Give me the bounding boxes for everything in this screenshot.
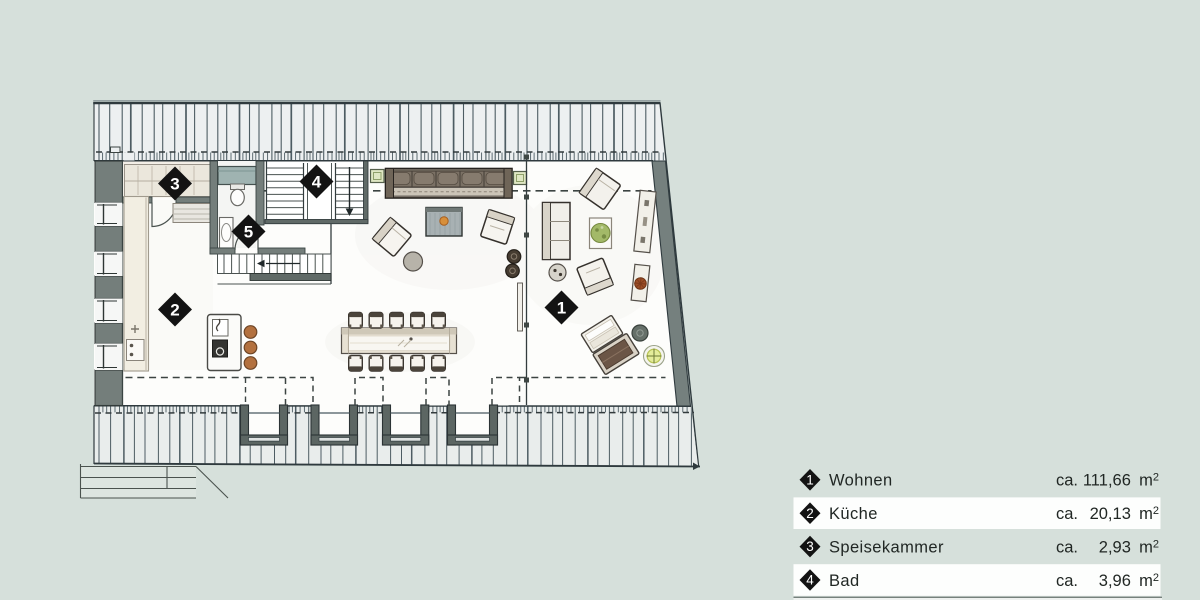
svg-text:ca.: ca.: [1056, 505, 1078, 523]
svg-text:2,93 m2: 2,93 m2: [1099, 538, 1159, 556]
svg-text:2: 2: [806, 506, 814, 521]
svg-text:ca.: ca.: [1056, 538, 1078, 556]
svg-text:3,96 m2: 3,96 m2: [1099, 572, 1159, 590]
svg-text:111,66 m2: 111,66 m2: [1083, 472, 1159, 490]
svg-text:Speisekammer: Speisekammer: [829, 538, 944, 556]
svg-text:4: 4: [312, 173, 322, 192]
svg-text:20,13 m2: 20,13 m2: [1090, 505, 1159, 523]
svg-text:3: 3: [806, 539, 814, 554]
svg-text:5: 5: [244, 223, 253, 242]
svg-text:ca.: ca.: [1056, 472, 1078, 490]
svg-text:Bad: Bad: [829, 572, 860, 590]
svg-text:2: 2: [170, 301, 179, 320]
svg-text:4: 4: [806, 573, 814, 588]
svg-text:1: 1: [557, 299, 566, 318]
svg-text:3: 3: [170, 175, 179, 194]
svg-text:ca.: ca.: [1056, 572, 1078, 590]
svg-text:1: 1: [806, 472, 814, 487]
svg-text:Küche: Küche: [829, 505, 878, 523]
svg-text:Wohnen: Wohnen: [829, 472, 893, 490]
